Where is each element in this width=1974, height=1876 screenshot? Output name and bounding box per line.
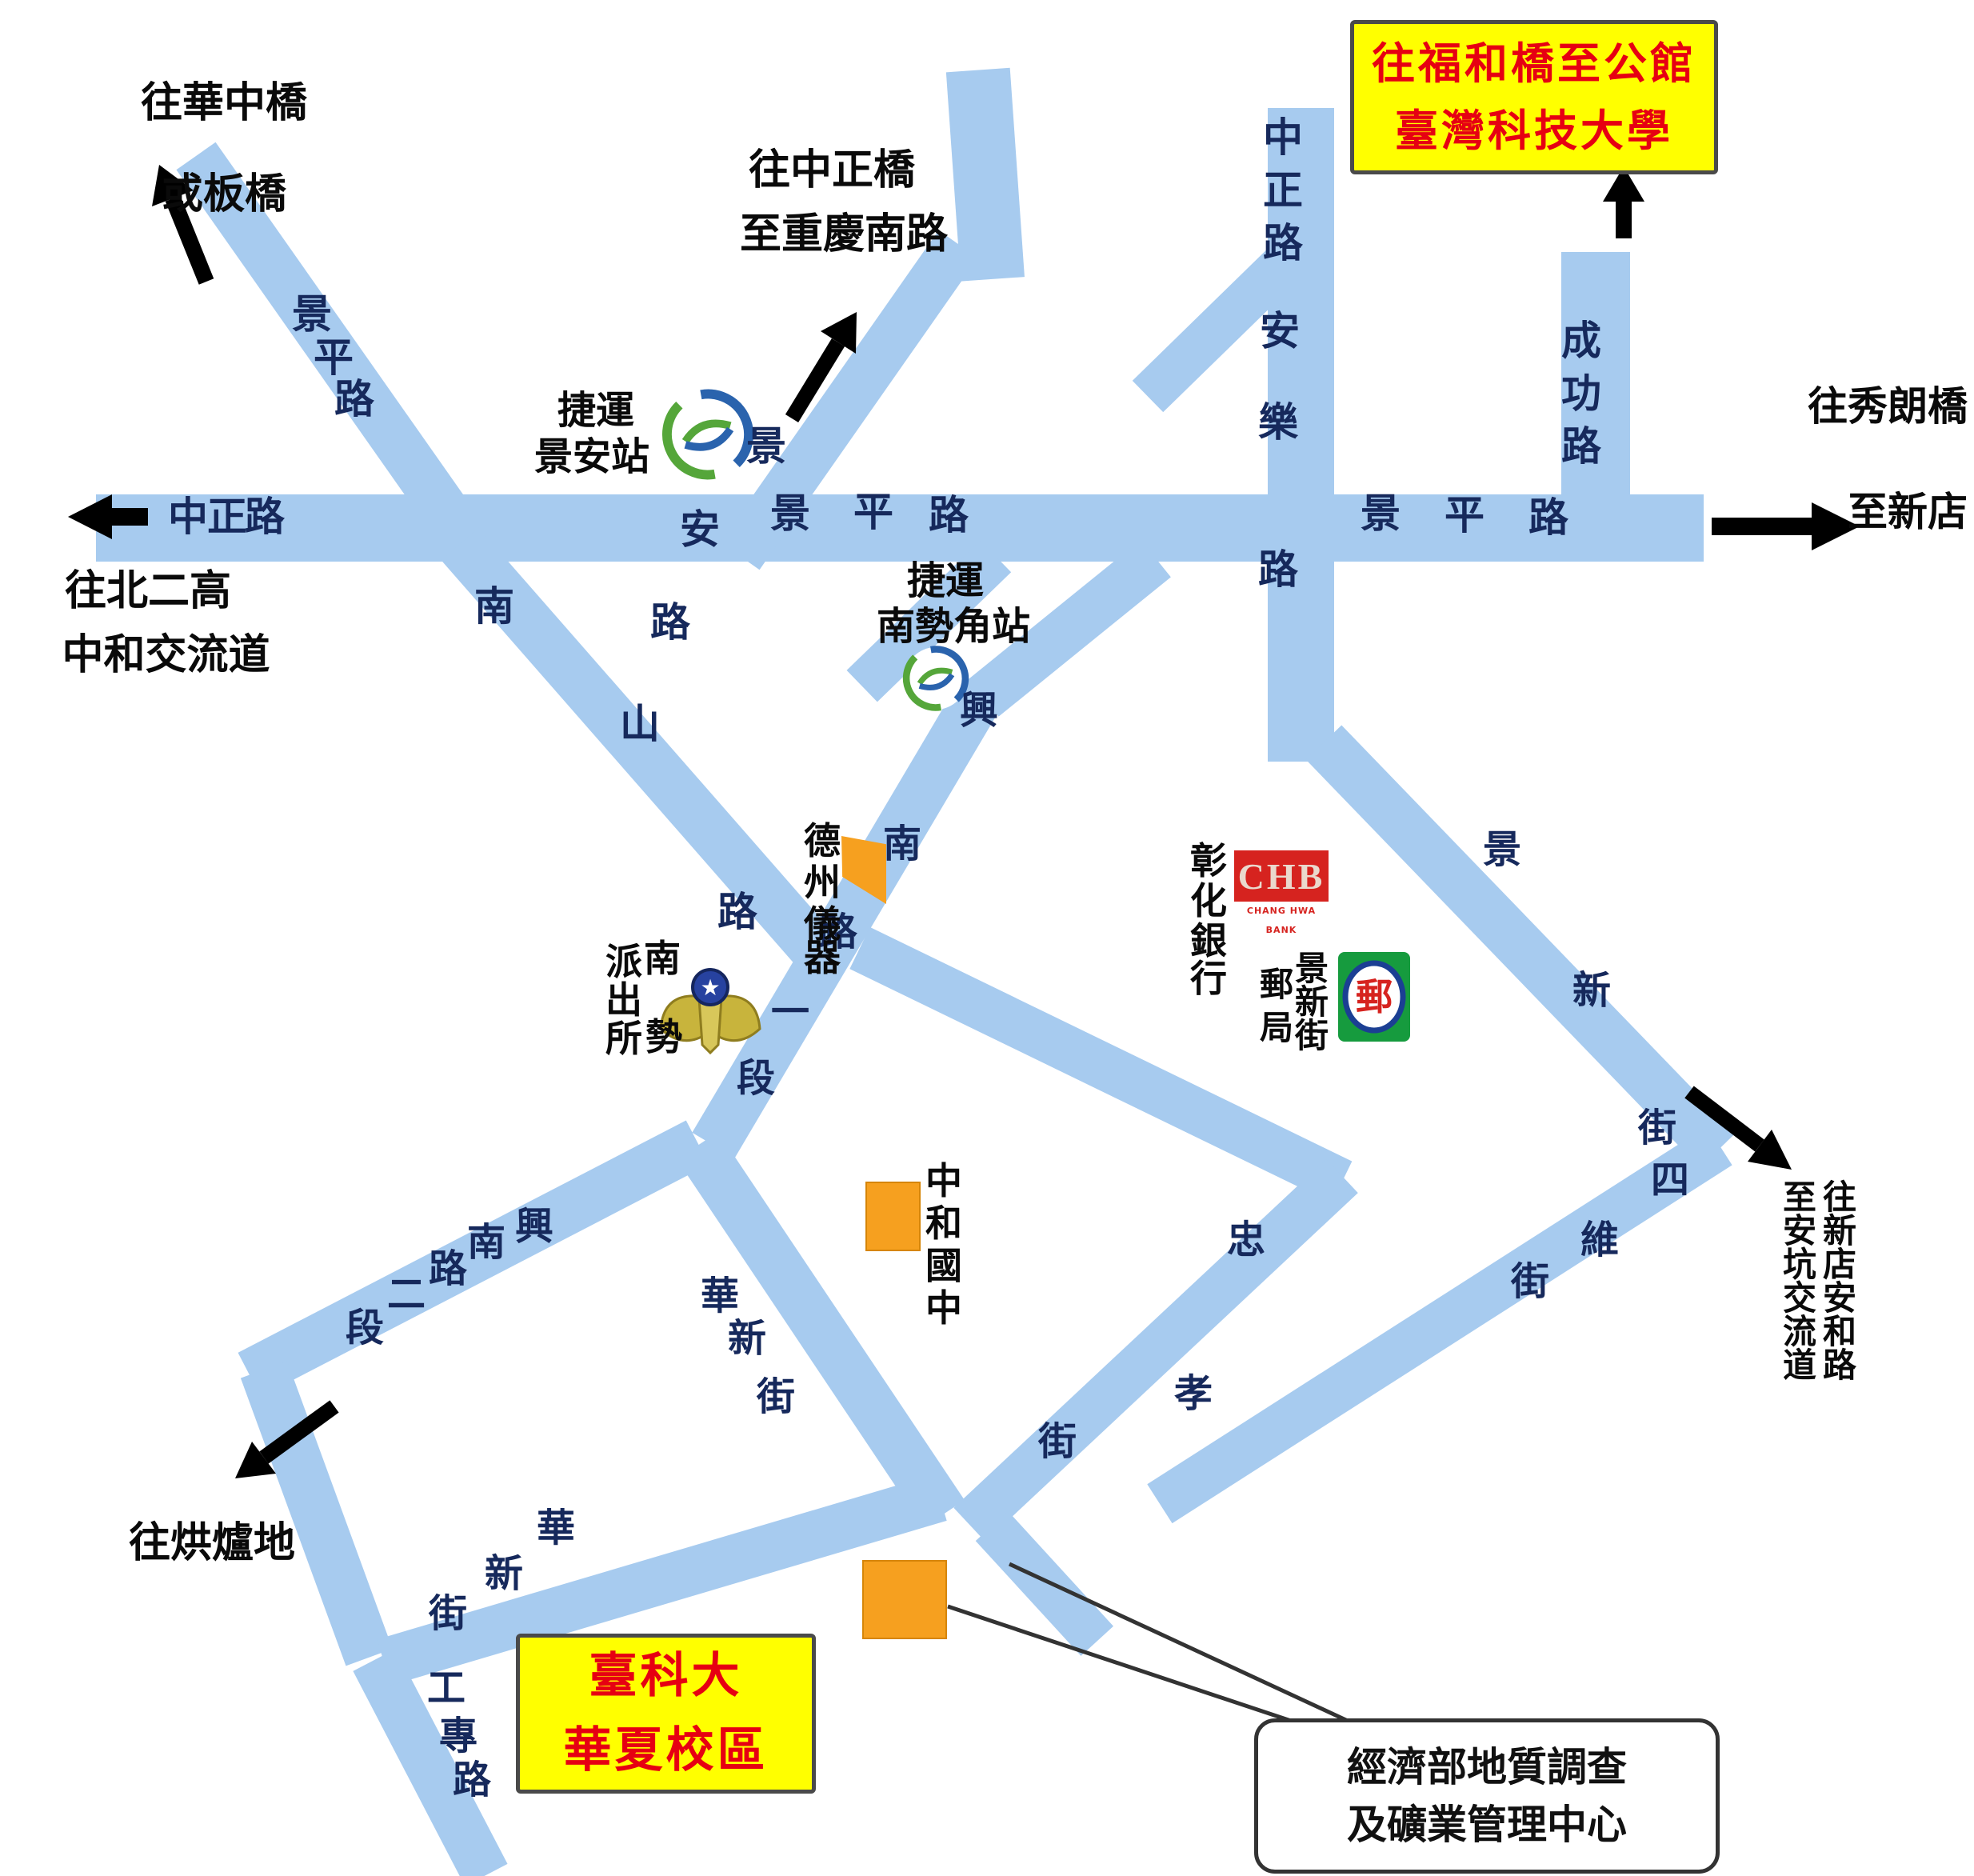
dest-xindian-column-char-5: 路 bbox=[1823, 1349, 1856, 1382]
poi-label-post-right-char-0: 景 bbox=[1295, 952, 1329, 986]
dest-xindian-column-char-0: 往 bbox=[1823, 1181, 1856, 1214]
road-label-jingan-char-0: 景 bbox=[746, 426, 786, 466]
road-label-nanshan-char-1: 山 bbox=[620, 704, 660, 744]
road-label-nanshan-char-0: 南 bbox=[474, 586, 514, 626]
dest-zhongzheng-bridge-line1: 往中正橋 bbox=[704, 147, 960, 195]
road-label-zhongzheng-left-char-0: 中 bbox=[168, 497, 208, 537]
road-label-huaxin-w-char-2: 街 bbox=[429, 1594, 467, 1633]
road-label-xingnan-1-char-0: 興 bbox=[960, 691, 998, 730]
dest-xindian-column-char-1: 新 bbox=[1823, 1214, 1856, 1248]
campus-box-huaxia: 臺科大 華夏校區 bbox=[516, 1634, 816, 1794]
destination-box-line1: 往福和橋至公館 bbox=[1372, 30, 1696, 98]
poi-label-zhonghe-char-1: 和 bbox=[925, 1205, 962, 1242]
chb-bank-logo: CHB CHANG HWA BANK bbox=[1234, 850, 1329, 922]
chb-logo-subtext: CHANG HWA BANK bbox=[1234, 902, 1329, 940]
arrow-honglu bbox=[235, 1406, 334, 1478]
dest-xindian-column-char-2: 店 bbox=[1823, 1248, 1856, 1282]
dest-ankeng-column-char-3: 交 bbox=[1783, 1282, 1816, 1315]
road-label-gongzhuan-char-0: 工 bbox=[427, 1669, 466, 1707]
callout-line1: 經濟部地質調查 bbox=[1347, 1738, 1627, 1797]
road-label-nanshan-char-2: 路 bbox=[717, 892, 757, 932]
dest-huazhong-line2: 或板橋 bbox=[96, 171, 352, 219]
callout-pointer-lines bbox=[948, 1564, 1360, 1726]
poi-label-police-left-char-0: 派 bbox=[605, 943, 642, 980]
road-label-xingnan-2-char-2: 路 bbox=[429, 1250, 467, 1288]
road-label-jingping-right-char-2: 路 bbox=[1528, 498, 1568, 538]
road-label-jingping-w-char-2: 路 bbox=[334, 379, 374, 419]
svg-text:郵: 郵 bbox=[1356, 975, 1393, 1018]
arrow-ankeng bbox=[1689, 1092, 1792, 1170]
road-label-jingan-char-1: 安 bbox=[680, 510, 720, 550]
dest-huazhong-line1: 往華中橋 bbox=[96, 80, 352, 128]
road-label-huaxin-w-char-1: 新 bbox=[485, 1554, 523, 1593]
road-label-jingping-mid-char-1: 平 bbox=[853, 492, 893, 532]
road-label-gongzhuan-char-1: 專 bbox=[439, 1717, 478, 1755]
zhonghe-junior-high-building bbox=[865, 1182, 921, 1251]
arrow-chenggong-up bbox=[1603, 166, 1644, 238]
poi-label-zhonghe-char-3: 中 bbox=[925, 1290, 962, 1326]
mrt-nanshijiao-logo bbox=[905, 647, 967, 710]
road-label-xingnan-1-char-1: 南 bbox=[883, 825, 921, 863]
poi-label-police-left-char-2: 所 bbox=[605, 1020, 642, 1057]
poi-label-police-right-char-1: 勢 bbox=[645, 1018, 682, 1055]
mrt-nanshijiao-label-line2: 南勢角站 bbox=[845, 605, 1061, 649]
road-label-zhongzheng-anle-char-0: 中 bbox=[1263, 118, 1303, 158]
campus-box-line1: 臺科大 bbox=[589, 1639, 743, 1714]
road-label-zhongzheng-anle-char-3: 安 bbox=[1260, 311, 1300, 351]
road-label-zhongxiao-char-0: 忠 bbox=[1227, 1221, 1265, 1259]
dest-xiulang-line1: 往秀朗橋 bbox=[1804, 384, 1972, 430]
road-label-chenggong-char-1: 功 bbox=[1561, 374, 1601, 414]
dest-ankeng-column-char-5: 道 bbox=[1783, 1349, 1816, 1382]
campus-box-line2: 華夏校區 bbox=[564, 1714, 769, 1788]
post-office-logo: 郵 bbox=[1338, 952, 1410, 1042]
road-label-xingnan-1-char-3: 一 bbox=[771, 993, 809, 1031]
road-label-jingping-mid-char-0: 景 bbox=[770, 494, 810, 534]
road-label-siwei-char-0: 四 bbox=[1651, 1161, 1689, 1199]
mrt-jingan-label-line1: 捷運 bbox=[516, 389, 676, 433]
dest-honglu: 往烘爐地 bbox=[84, 1520, 340, 1568]
road-label-huaxin-w-char-0: 華 bbox=[537, 1509, 575, 1547]
destination-box-fuhe-ntust: 往福和橋至公館 臺灣科技大學 bbox=[1350, 20, 1718, 174]
road-label-jingxin-char-0: 景 bbox=[1483, 830, 1521, 869]
road-label-zhongzheng-anle-char-2: 路 bbox=[1263, 223, 1303, 263]
road-label-zhongzheng-left-char-1: 正 bbox=[207, 497, 247, 537]
dest-ankeng-column-char-0: 至 bbox=[1783, 1181, 1816, 1214]
road-label-siwei-char-1: 維 bbox=[1580, 1221, 1619, 1259]
poi-label-zhonghe-char-0: 中 bbox=[925, 1162, 962, 1199]
dest-zhongzheng-bridge-line2: 至重慶南路 bbox=[692, 211, 996, 259]
road-label-huaxin-n-char-0: 華 bbox=[701, 1277, 739, 1315]
arrow-xiulang-right bbox=[1712, 502, 1860, 550]
poi-label-post-left-char-1: 局 bbox=[1260, 1011, 1293, 1045]
poi-label-zhonghe-char-2: 國 bbox=[925, 1247, 962, 1284]
poi-label-changhwa-char-2: 銀 bbox=[1190, 922, 1227, 959]
poi-label-texas-char-1: 州 bbox=[804, 864, 841, 901]
road-label-xingnan-2-char-4: 段 bbox=[346, 1309, 384, 1347]
road-label-jingping-w-char-0: 景 bbox=[292, 294, 332, 334]
road-label-jingxin-char-1: 新 bbox=[1572, 971, 1611, 1010]
road-label-chenggong-char-2: 路 bbox=[1561, 426, 1601, 466]
arrow-zhongzheng-left bbox=[68, 494, 148, 539]
poi-label-texas-char-3: 器 bbox=[804, 939, 841, 976]
poi-label-post-left-char-0: 郵 bbox=[1260, 968, 1293, 1002]
campus-building bbox=[862, 1560, 947, 1639]
map-overlay-graphics: ★ 郵 bbox=[0, 0, 1974, 1876]
dest-xindian-column-char-3: 安 bbox=[1823, 1282, 1856, 1315]
road-label-xingnan-2-char-0: 興 bbox=[515, 1207, 553, 1246]
poi-label-changhwa-char-3: 行 bbox=[1190, 960, 1227, 997]
poi-label-texas-char-0: 德 bbox=[804, 822, 841, 859]
road-label-zhongzheng-anle-char-1: 正 bbox=[1263, 170, 1303, 210]
callout-line2: 及礦業管理中心 bbox=[1347, 1796, 1627, 1854]
road-label-huaxin-n-char-1: 新 bbox=[728, 1319, 766, 1358]
dest-xiulang-line2: 至新店 bbox=[1844, 490, 1972, 536]
road-label-gongzhuan-char-2: 路 bbox=[453, 1761, 491, 1799]
road-label-zhongzheng-left-char-2: 路 bbox=[245, 497, 285, 537]
arrow-zhongzheng-bridge bbox=[792, 312, 857, 418]
dest-ankeng-column-char-4: 流 bbox=[1783, 1315, 1816, 1349]
road-label-xingnan-2-char-3: 二 bbox=[387, 1275, 426, 1314]
poi-label-police-right-char-0: 南 bbox=[644, 940, 681, 977]
mrt-nanshijiao-label-line1: 捷運 bbox=[865, 559, 1025, 603]
poi-label-post-right-char-1: 新 bbox=[1295, 986, 1329, 1019]
chb-logo-text: CHB bbox=[1234, 850, 1329, 902]
dest-beiergao-line2: 中和交流道 bbox=[16, 632, 316, 680]
poi-label-post-right-char-2: 街 bbox=[1295, 1019, 1329, 1053]
road-label-jingan-char-2: 路 bbox=[650, 602, 690, 642]
road-map: ★ 郵 往福和橋至公館 臺灣科技大學 臺科大 華夏校區 經濟部地質調查 及礦業管… bbox=[0, 0, 1974, 1876]
road-label-zhongxiao-char-2: 街 bbox=[1038, 1422, 1077, 1461]
road-label-jingping-right-char-0: 景 bbox=[1361, 494, 1401, 534]
road-label-zhongxiao-char-1: 孝 bbox=[1174, 1374, 1213, 1413]
road-label-jingxin-char-2: 街 bbox=[1638, 1109, 1676, 1147]
callout-geological-survey: 經濟部地質調查 及礦業管理中心 bbox=[1254, 1718, 1720, 1874]
dest-xindian-column-char-4: 和 bbox=[1823, 1315, 1856, 1349]
mrt-jingan-label-line2: 景安站 bbox=[500, 435, 684, 479]
road-label-jingping-right-char-1: 平 bbox=[1445, 495, 1484, 535]
road-label-xingnan-2-char-1: 南 bbox=[467, 1223, 505, 1262]
road-label-jingping-w-char-1: 平 bbox=[314, 338, 354, 378]
poi-label-police-left-char-1: 出 bbox=[605, 982, 642, 1018]
road-label-zhongzheng-anle-char-5: 路 bbox=[1258, 550, 1298, 590]
road-label-xingnan-1-char-4: 段 bbox=[737, 1059, 775, 1098]
road-label-jingping-mid-char-2: 路 bbox=[929, 495, 969, 535]
road-label-siwei-char-2: 街 bbox=[1511, 1262, 1549, 1301]
dest-beiergao-line1: 往北二高 bbox=[20, 568, 276, 616]
dest-ankeng-column-char-1: 安 bbox=[1783, 1214, 1816, 1248]
road-label-zhongzheng-anle-char-4: 樂 bbox=[1258, 402, 1298, 442]
poi-label-changhwa-char-1: 化 bbox=[1190, 882, 1227, 919]
destination-box-line2: 臺灣科技大學 bbox=[1395, 98, 1673, 165]
road-label-chenggong-char-0: 成 bbox=[1561, 321, 1601, 361]
dest-ankeng-column-char-2: 坑 bbox=[1783, 1248, 1816, 1282]
poi-label-changhwa-char-0: 彰 bbox=[1190, 842, 1227, 879]
road-label-huaxin-n-char-2: 街 bbox=[757, 1378, 795, 1416]
